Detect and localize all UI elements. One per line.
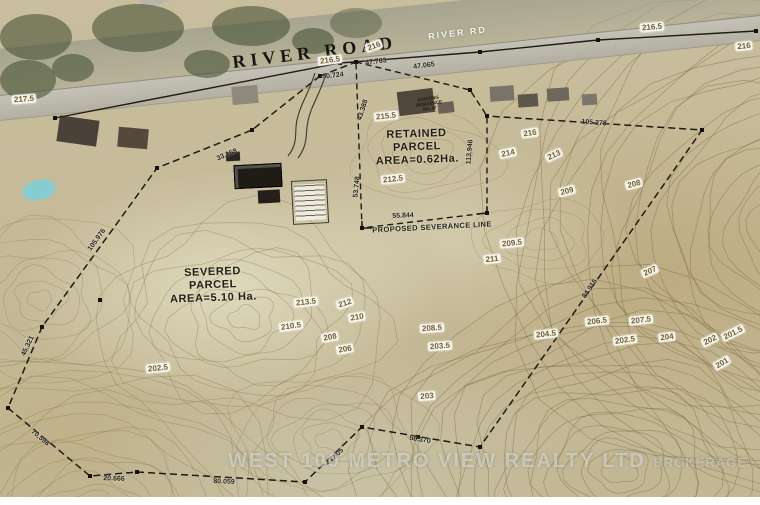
- survey-map-screenshot: RIVER ROAD RIVER RD RETAINED PARCEL AREA…: [0, 0, 760, 505]
- boundary-vertex-marker: [155, 166, 159, 170]
- aerial-topo-map: RIVER ROAD RIVER RD RETAINED PARCEL AREA…: [0, 0, 760, 497]
- parcel-boundary-layer: [0, 0, 760, 497]
- boundary-vertex-marker: [250, 128, 254, 132]
- driveway-line: [298, 74, 326, 158]
- dimension-label: 80.059: [213, 478, 235, 486]
- boundary-vertex-marker: [700, 128, 704, 132]
- boundary-vertex-marker: [40, 325, 44, 329]
- boundary-vertex-marker: [485, 114, 489, 118]
- boundary-vertex-marker: [754, 29, 758, 33]
- retained-parcel-label: RETAINED PARCEL AREA=0.62Ha.: [375, 127, 460, 169]
- severed-parcel-label: SEVERED PARCEL AREA=5.10 Ha.: [169, 264, 257, 306]
- boundary-vertex-marker: [596, 38, 600, 42]
- boundary-vertex-marker: [478, 445, 482, 449]
- contour-label: 203: [418, 391, 436, 401]
- contour-label: 208.5: [420, 323, 445, 334]
- boundary-vertex-marker: [98, 298, 102, 302]
- boundary-vertex-marker: [360, 226, 364, 230]
- boundary-vertex-marker: [6, 406, 10, 410]
- contour-label: 203.5: [428, 341, 453, 352]
- boundary-vertex-marker: [485, 211, 489, 215]
- boundary-vertex-marker: [88, 474, 92, 478]
- dimension-label: 20.666: [103, 475, 125, 483]
- boundary-vertex-marker: [478, 50, 482, 54]
- contour-label: 216: [735, 41, 753, 52]
- boundary-vertex-marker: [468, 88, 472, 92]
- contour-label: 211: [483, 254, 501, 265]
- boundary-vertex-marker: [53, 116, 57, 120]
- boundary-vertex-marker: [135, 470, 139, 474]
- bottom-margin: [0, 497, 760, 505]
- realty-watermark: WEST 100 METRO VIEW REALTY LTD BROKERAGE: [228, 450, 747, 473]
- boundary-vertex-marker: [303, 480, 307, 484]
- dimension-label: 55.844: [392, 212, 414, 220]
- boundary-vertex-marker: [354, 60, 358, 64]
- driveway-line: [288, 73, 315, 156]
- severed-parcel-boundary: [8, 76, 702, 482]
- boundary-vertex-marker: [360, 425, 364, 429]
- contour-label: 217.5: [12, 94, 37, 105]
